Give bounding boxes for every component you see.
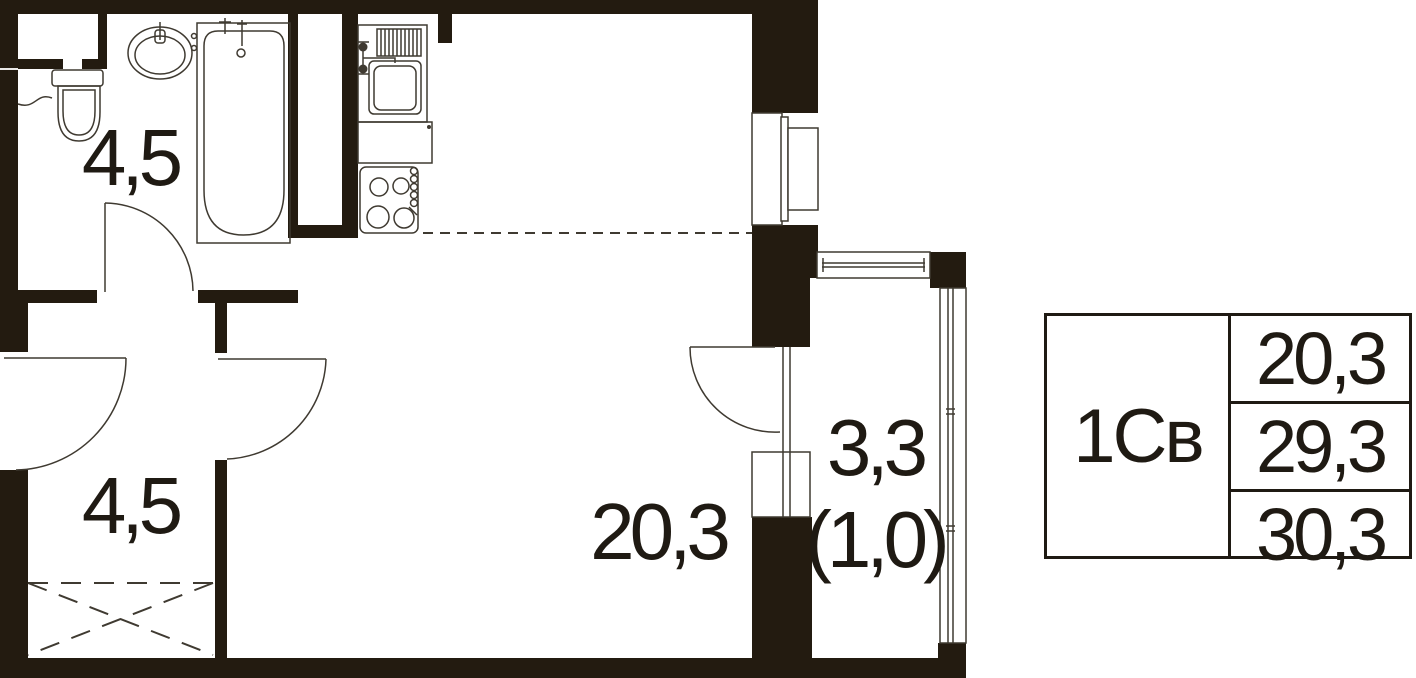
bathroom-door-swing <box>105 203 193 292</box>
unit-total-area-cell: 30,3 <box>1231 492 1409 577</box>
floorplan-canvas: 4,5 4,5 20,3 3,3 (1,0) 1Св 20,3 29,3 30,… <box>0 0 1416 678</box>
wardrobe-dashed-box <box>28 583 213 655</box>
bathroom-area-label: 4,5 <box>55 118 205 198</box>
living-room-door-swing <box>218 359 326 459</box>
unit-areas-column: 20,3 29,3 30,3 <box>1231 316 1409 556</box>
balcony-reduced-area-label: (1,0) <box>795 500 955 580</box>
balcony-area-label: 3,3 <box>800 408 950 488</box>
entrance-door-swing <box>4 358 126 470</box>
stove <box>360 167 418 233</box>
hallway-area-label: 4,5 <box>55 466 205 546</box>
window-right-wall <box>752 113 818 225</box>
balcony-door-swing <box>690 347 780 432</box>
bathroom-sink <box>128 22 197 79</box>
unit-area-no-balcony-cell: 29,3 <box>1231 404 1409 492</box>
balcony-window-top <box>817 252 930 278</box>
unit-spec-table: 1Св 20,3 29,3 30,3 <box>1044 313 1412 559</box>
bathtub <box>197 18 290 243</box>
kitchen-sink <box>357 25 427 122</box>
unit-type-cell: 1Св <box>1047 316 1231 556</box>
living-room-area-label: 20,3 <box>578 492 738 572</box>
unit-living-area-cell: 20,3 <box>1231 316 1409 404</box>
kitchen-counter <box>358 122 432 163</box>
